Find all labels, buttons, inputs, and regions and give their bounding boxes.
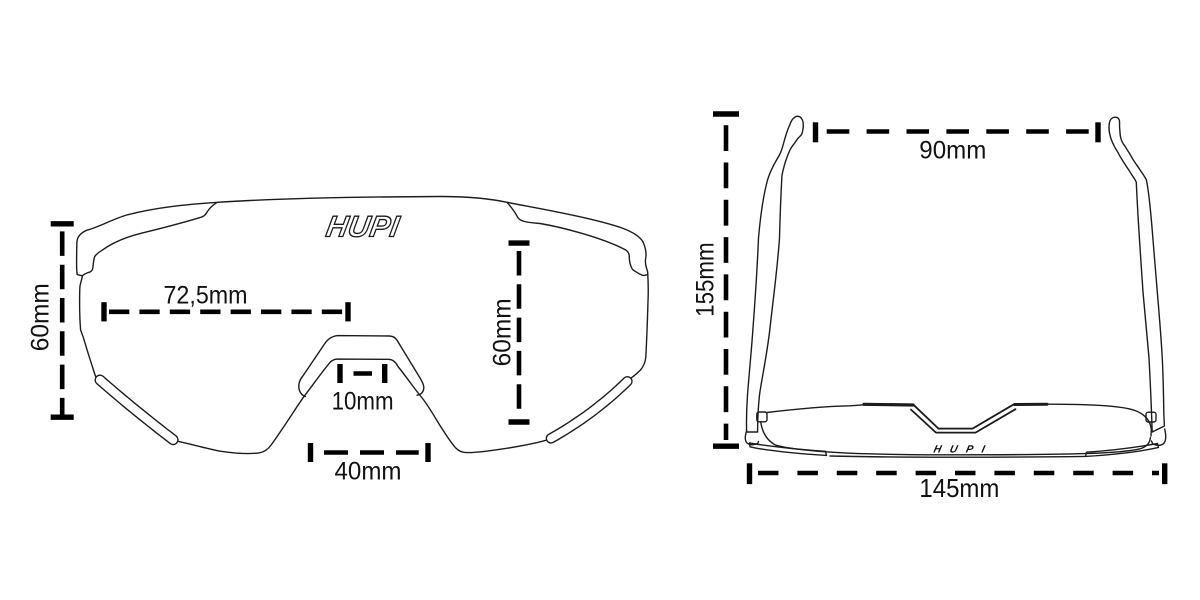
svg-text:HUPI: HUPI [932, 444, 994, 456]
svg-text:60mm: 60mm [26, 283, 54, 351]
svg-text:HUPI: HUPI [324, 211, 402, 244]
svg-text:72,5mm: 72,5mm [164, 282, 248, 310]
svg-text:155mm: 155mm [692, 242, 720, 317]
svg-text:60mm: 60mm [488, 298, 516, 366]
svg-text:40mm: 40mm [335, 458, 402, 486]
svg-text:145mm: 145mm [919, 473, 999, 503]
svg-text:10mm: 10mm [332, 387, 394, 415]
svg-text:90mm: 90mm [919, 137, 986, 165]
